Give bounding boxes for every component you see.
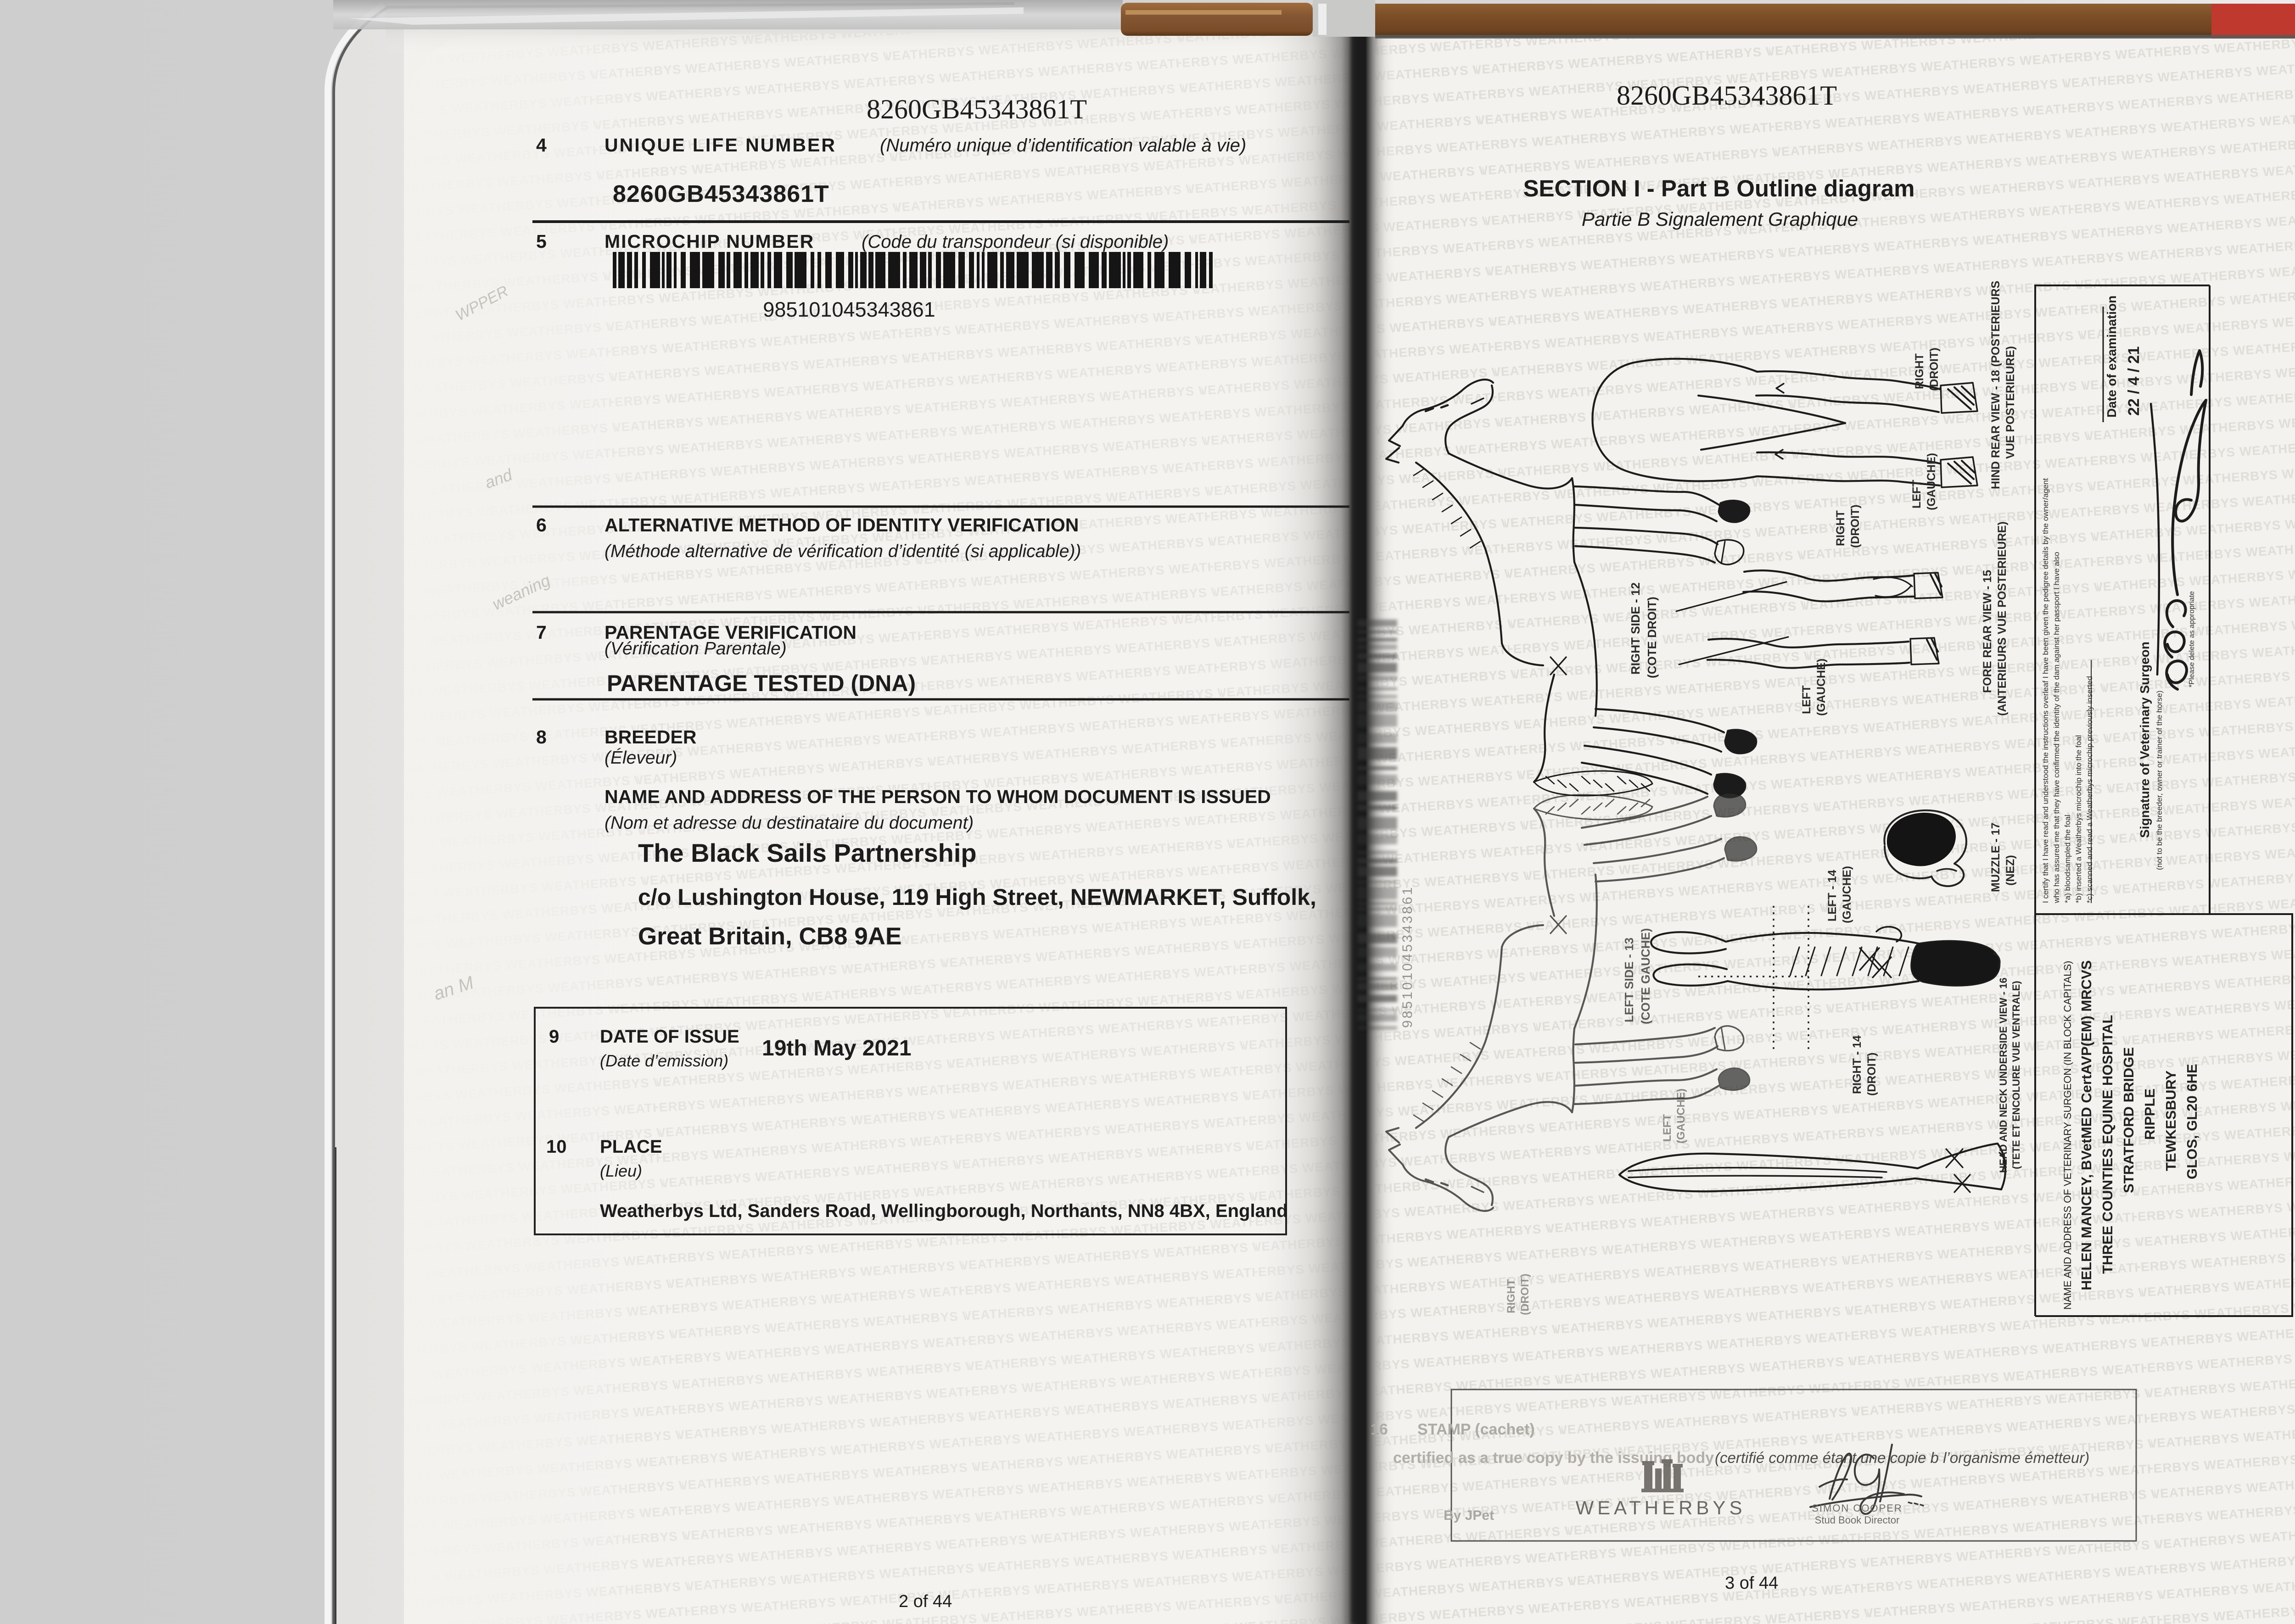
- svg-text:LEFT: LEFT: [1910, 480, 1923, 509]
- svg-text:MICROCHIP NUMBER: MICROCHIP NUMBER: [605, 231, 814, 252]
- svg-text:who has assured me that they h: who has assured me that they have confir…: [2052, 552, 2061, 904]
- svg-text:RIGHT: RIGHT: [1505, 1279, 1517, 1313]
- svg-text:(Nom et adresse du destinatair: (Nom et adresse du destinataire du docum…: [605, 813, 974, 833]
- svg-text:STRATFORD BRIDGE: STRATFORD BRIDGE: [2121, 1047, 2137, 1193]
- svg-text:Weatherbys Ltd, Sanders Road,: Weatherbys Ltd, Sanders Road, Wellingbor…: [600, 1201, 1288, 1221]
- svg-text:The Black Sails Partnership: The Black Sails Partnership: [638, 838, 977, 867]
- svg-text:(DROIT): (DROIT): [1519, 1273, 1531, 1315]
- svg-text:LEFT SIDE - 13: LEFT SIDE - 13: [1622, 938, 1636, 1022]
- svg-text:c/o Lushington House, 119 High: c/o Lushington House, 119 High Street, N…: [638, 884, 1316, 910]
- svg-text:LEFT: LEFT: [1800, 686, 1813, 714]
- svg-text:MUZZLE - 17: MUZZLE - 17: [1989, 823, 2002, 892]
- svg-text:(DROIT): (DROIT): [1928, 348, 1941, 391]
- svg-text:Great Britain, CB8 9AE: Great Britain, CB8 9AE: [638, 923, 901, 950]
- svg-text:10: 10: [546, 1137, 567, 1157]
- svg-text:Signature of Veterinary Surgeo: Signature of Veterinary Surgeon: [2138, 642, 2152, 838]
- svg-text:(GAUCHE): (GAUCHE): [1841, 866, 1853, 923]
- svg-text:RIGHT: RIGHT: [1913, 353, 1926, 389]
- svg-text:8: 8: [536, 726, 547, 748]
- svg-text:RIGHT SIDE - 12: RIGHT SIDE - 12: [1629, 582, 1642, 675]
- svg-text:BREEDER: BREEDER: [605, 726, 696, 748]
- svg-text:RIGHT - 14: RIGHT - 14: [1851, 1035, 1864, 1094]
- svg-text:(GAUCHE): (GAUCHE): [1815, 659, 1828, 716]
- svg-text:(Code du transpondeur (si disp: (Code du transpondeur (si disponible): [862, 232, 1169, 252]
- svg-text:By JPet: By JPet: [1444, 1508, 1494, 1523]
- svg-text:8260GB45343861T: 8260GB45343861T: [1617, 80, 1837, 111]
- svg-text:2 of 44: 2 of 44: [899, 1592, 952, 1611]
- svg-text:*c) scanned and read a Weather: *c) scanned and read a Weatherbys microc…: [2085, 676, 2094, 903]
- svg-text:(Lieu): (Lieu): [600, 1161, 642, 1180]
- svg-text:(NEZ): (NEZ): [2004, 855, 2017, 886]
- svg-text:Partie B Signalement Graphique: Partie B Signalement Graphique: [1582, 208, 1858, 230]
- svg-text:NAME AND ADDRESS OF VETERINARY: NAME AND ADDRESS OF VETERINARY SURGEON (…: [2062, 961, 2073, 1310]
- svg-text:LEFT: LEFT: [1661, 1114, 1674, 1142]
- svg-text:22 / 4 / 21: 22 / 4 / 21: [2125, 346, 2143, 416]
- svg-text:SIMON COOPER: SIMON COOPER: [1812, 1502, 1903, 1514]
- svg-text:(GAUCHE): (GAUCHE): [1925, 453, 1938, 510]
- svg-text:PARENTAGE TESTED (DNA): PARENTAGE TESTED (DNA): [607, 670, 916, 696]
- svg-text:FORE REAR VIEW - 15: FORE REAR VIEW - 15: [1981, 570, 1994, 693]
- svg-text:8260GB45343861T: 8260GB45343861T: [613, 181, 829, 207]
- svg-text:HIND REAR VIEW - 18 (POSTERIEU: HIND REAR VIEW - 18 (POSTERIEURS: [1989, 281, 2002, 489]
- svg-text:5: 5: [536, 231, 547, 252]
- svg-text:*b) inserted a Weatherbys micr: *b) inserted a Weatherbys microchip into…: [2074, 735, 2083, 903]
- svg-text:6: 6: [536, 514, 547, 536]
- svg-text:(Date d’emission): (Date d’emission): [600, 1051, 728, 1070]
- svg-text:(DROIT): (DROIT): [1849, 505, 1862, 548]
- svg-text:985101045343861: 985101045343861: [1400, 886, 1415, 1028]
- svg-text:HEAD AND NECK UNDERSIDE VIEW -: HEAD AND NECK UNDERSIDE VIEW - 16: [1998, 977, 2009, 1173]
- svg-text:(DROIT): (DROIT): [1865, 1053, 1878, 1096]
- svg-text:9: 9: [549, 1027, 559, 1047]
- svg-text:*Please delete as appropriate: *Please delete as appropriate: [2188, 591, 2196, 687]
- svg-text:Date of examination: Date of examination: [2105, 296, 2119, 418]
- svg-text:DATE OF ISSUE: DATE OF ISSUE: [600, 1027, 739, 1047]
- svg-text:LEFT - 14: LEFT - 14: [1826, 870, 1839, 921]
- svg-text:4: 4: [536, 134, 547, 156]
- svg-text:WEATHERBYS: WEATHERBYS: [1576, 1497, 1746, 1518]
- svg-text:RIPPLE: RIPPLE: [2142, 1088, 2158, 1140]
- svg-text:HELEN MANCEY, BVetMED CertAVP(: HELEN MANCEY, BVetMED CertAVP(EM) MRCVS: [2078, 960, 2094, 1290]
- svg-text:SECTION I - Part B Outline dia: SECTION I - Part B Outline diagram: [1523, 175, 1915, 201]
- svg-text:TEWKESBURY: TEWKESBURY: [2163, 1070, 2179, 1171]
- svg-text:*a) bloodsampled the foal: *a) bloodsampled the foal: [2063, 815, 2072, 903]
- svg-text:Stud Book Director: Stud Book Director: [1815, 1514, 1900, 1526]
- svg-text:GLOS, GL20 6HE: GLOS, GL20 6HE: [2184, 1064, 2200, 1179]
- svg-text:(COTE GAUCHE): (COTE GAUCHE): [1639, 928, 1652, 1024]
- svg-text:UNIQUE LIFE NUMBER: UNIQUE LIFE NUMBER: [605, 134, 836, 156]
- svg-text:(Numéro unique d’identificatio: (Numéro unique d’identification valable …: [880, 135, 1246, 156]
- svg-text:(ANTERIEURS VUE POSTERIEURE): (ANTERIEURS VUE POSTERIEURE): [1996, 521, 2009, 716]
- svg-text:8260GB45343861T: 8260GB45343861T: [867, 94, 1087, 124]
- svg-text:3 of 44: 3 of 44: [1725, 1574, 1778, 1593]
- svg-text:(not to be the breeder, owner: (not to be the breeder, owner or trainer…: [2155, 691, 2164, 870]
- svg-text:I certify that I have read and: I certify that I have read and understoo…: [2041, 478, 2050, 903]
- svg-text:VUE POSTERIEURE): VUE POSTERIEURE): [2004, 346, 2017, 459]
- svg-text:THREE COUNTIES EQUINE HOSPITAL: THREE COUNTIES EQUINE HOSPITAL: [2099, 1015, 2116, 1274]
- svg-text:(COTE DROIT): (COTE DROIT): [1645, 597, 1659, 678]
- svg-text:(TETE ET ENCOLURE VUE VENTRALE: (TETE ET ENCOLURE VUE VENTRALE): [2010, 981, 2022, 1169]
- svg-text:ALTERNATIVE METHOD OF IDENTITY: ALTERNATIVE METHOD OF IDENTITY VERIFICAT…: [605, 514, 1079, 536]
- svg-text:STAMP (cachet): STAMP (cachet): [1417, 1421, 1535, 1438]
- svg-text:985101045343861: 985101045343861: [763, 298, 935, 321]
- svg-text:RIGHT: RIGHT: [1834, 510, 1847, 546]
- svg-text:(Méthode alternative de vérifi: (Méthode alternative de vérification d’i…: [605, 541, 1081, 561]
- svg-text:(Éleveur): (Éleveur): [605, 748, 677, 768]
- svg-text:PLACE: PLACE: [600, 1137, 662, 1157]
- svg-text:16: 16: [1371, 1421, 1388, 1438]
- svg-text:(certifié comme étant une copi: (certifié comme étant une copie b l’orga…: [1715, 1449, 2089, 1466]
- svg-text:NAME AND ADDRESS OF THE PERSON: NAME AND ADDRESS OF THE PERSON TO WHOM D…: [605, 786, 1271, 807]
- svg-text:(GAUCHE): (GAUCHE): [1675, 1088, 1687, 1144]
- svg-text:(Vérification Parentale): (Vérification Parentale): [605, 639, 787, 659]
- svg-text:7: 7: [536, 622, 547, 643]
- svg-text:19th May 2021: 19th May 2021: [762, 1036, 912, 1060]
